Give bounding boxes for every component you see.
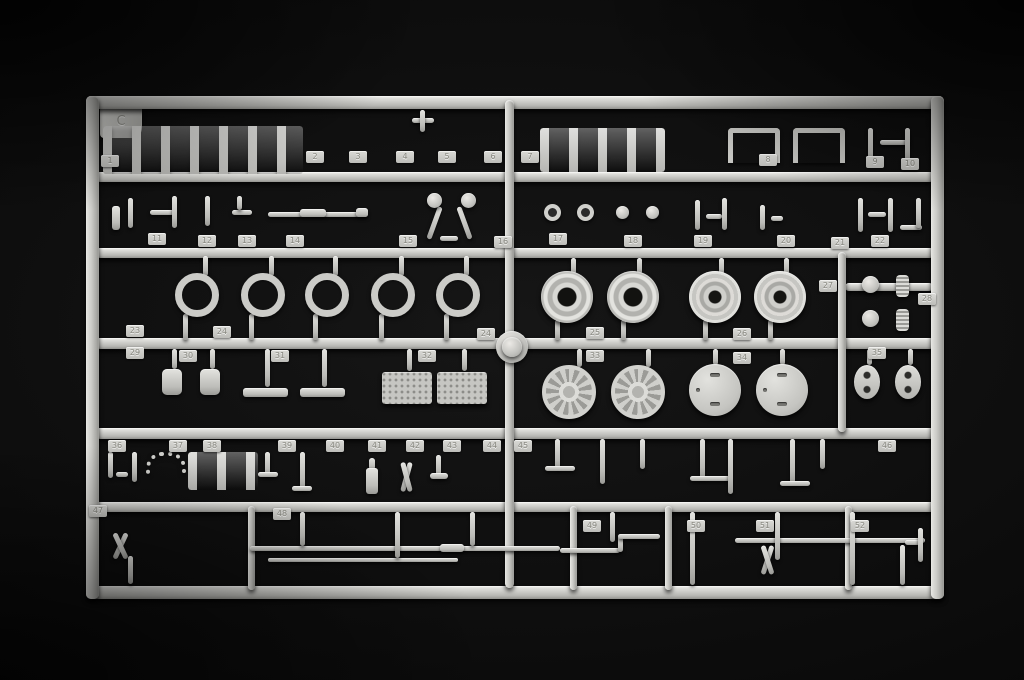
runner-part	[116, 472, 128, 477]
part-number-tab: 25	[586, 327, 604, 339]
runner-part	[300, 512, 305, 546]
runner-part	[258, 472, 278, 477]
part-number-tab: 13	[238, 235, 256, 247]
runner-part	[618, 534, 660, 539]
part-number-tab: 38	[203, 440, 221, 452]
sprue: C 12345678910111213141516171819202122232…	[0, 0, 1024, 680]
runner-part	[440, 236, 458, 241]
part-number-tab: 42	[406, 440, 424, 452]
runner-part	[768, 320, 773, 340]
runner-part	[205, 196, 210, 226]
runner-part	[333, 256, 338, 276]
part-number-tab: 24	[213, 326, 231, 338]
part-number-tab: 44	[483, 440, 501, 452]
ring-part	[241, 273, 285, 317]
part-number-tab: 51	[756, 520, 774, 532]
runner-part	[780, 481, 810, 486]
part-number-tab: 14	[286, 235, 304, 247]
runner-part	[771, 216, 783, 221]
toothed-arc-part	[146, 452, 186, 474]
runner-part	[444, 314, 449, 340]
flat-disc-part	[689, 364, 741, 416]
part-number-tab: 1	[101, 155, 119, 167]
part-number-tab: 15	[399, 235, 417, 247]
donut-disc-part	[577, 204, 594, 221]
runner-part	[407, 349, 412, 371]
runner-part	[735, 538, 925, 543]
runner-part	[366, 468, 378, 494]
round-part	[862, 276, 879, 293]
runner-part	[399, 256, 404, 276]
sprue-rail	[931, 96, 944, 599]
runner-part	[462, 349, 467, 371]
sprue-rail	[845, 283, 933, 291]
ring-part	[305, 273, 349, 317]
part-number-tab: 10	[901, 158, 919, 170]
runner-part	[703, 320, 708, 340]
part-number-tab: 30	[179, 350, 197, 362]
part-number-tab: 17	[549, 233, 567, 245]
runner-part	[713, 349, 718, 365]
part-number-tab: 21	[831, 237, 849, 249]
runner-part	[775, 512, 780, 560]
runner-part	[150, 210, 174, 215]
sprue-rail	[86, 96, 944, 109]
runner-part	[908, 349, 913, 365]
runner-part	[108, 452, 113, 478]
runner-part	[610, 512, 615, 542]
part-number-tab: 47	[89, 505, 107, 517]
hatch-oval-part	[854, 365, 880, 399]
part-number-tab: 11	[148, 233, 166, 245]
round-part	[427, 193, 442, 208]
runner-part	[426, 206, 442, 240]
runner-part	[183, 314, 188, 340]
part-number-tab: 52	[851, 520, 869, 532]
part-number-tab: 36	[108, 440, 126, 452]
box-part	[200, 369, 220, 395]
donut-disc-part	[544, 204, 561, 221]
tread-plate-part	[437, 372, 487, 404]
hub-wheel	[611, 365, 665, 419]
sprue-rail	[838, 252, 846, 432]
part-number-tab: 24	[477, 328, 495, 340]
part-number-tab: 12	[198, 235, 216, 247]
sprue-rail	[665, 506, 672, 590]
runner-part	[640, 439, 645, 469]
runner-part	[232, 210, 252, 215]
sprue-rail	[86, 586, 944, 599]
runner-part	[728, 439, 733, 494]
runner-part	[700, 439, 705, 479]
flat-bar-part	[243, 388, 288, 397]
runner-part	[265, 349, 270, 387]
part-number-tab: 41	[368, 440, 386, 452]
runner-part	[888, 198, 893, 232]
road-wheel-rim	[541, 271, 593, 323]
runner-part	[269, 256, 274, 276]
runner-part	[600, 439, 605, 484]
runner-part	[722, 198, 727, 230]
runner-part	[203, 256, 208, 276]
runner-part	[237, 196, 242, 210]
runner-part	[545, 466, 575, 471]
gear-cylinder-part	[896, 309, 909, 331]
part-number-tab: 16	[494, 236, 512, 248]
part-number-tab: 34	[733, 352, 751, 364]
runner-part	[900, 545, 905, 585]
runner-part	[300, 209, 326, 217]
runner-part	[646, 349, 651, 367]
round-part	[502, 337, 522, 357]
part-number-tab: 32	[418, 350, 436, 362]
runner-part	[112, 206, 120, 230]
runner-part	[395, 512, 400, 558]
part-number-tab: 48	[273, 508, 291, 520]
ring-part	[175, 273, 219, 317]
runner-part	[760, 205, 765, 230]
runner-part	[790, 439, 795, 484]
part-number-tab: 45	[514, 440, 532, 452]
small-pin-parts-row	[188, 452, 258, 490]
part-number-tab: 23	[126, 325, 144, 337]
runner-part	[820, 439, 825, 469]
hub-wheel	[542, 365, 596, 419]
part-number-tab: 26	[733, 328, 751, 340]
small-pin-parts-row	[540, 128, 665, 172]
runner-part	[555, 320, 560, 340]
part-number-tab: 33	[586, 350, 604, 362]
flat-disc-part	[756, 364, 808, 416]
round-part	[862, 310, 879, 327]
sprue-rail	[95, 428, 940, 439]
runner-part	[560, 548, 620, 553]
bracket-part	[793, 128, 845, 163]
round-part	[646, 206, 659, 219]
runner-part	[292, 486, 312, 491]
runner-part	[420, 110, 425, 132]
part-number-tab: 5	[438, 151, 456, 163]
part-number-tab: 19	[694, 235, 712, 247]
runner-part	[456, 206, 472, 240]
part-number-tab: 6	[484, 151, 502, 163]
part-number-tab: 3	[349, 151, 367, 163]
box-part	[162, 369, 182, 395]
part-number-tab: 49	[583, 520, 601, 532]
runner-part	[440, 544, 464, 552]
part-number-tab: 22	[871, 235, 889, 247]
sprue-rail	[95, 248, 935, 258]
runner-part	[268, 558, 458, 562]
sprue-rail	[86, 96, 99, 599]
sprue-photo: C 12345678910111213141516171819202122232…	[0, 0, 1024, 680]
runner-part	[430, 473, 448, 479]
runner-part	[690, 476, 730, 481]
part-number-tab: 28	[918, 293, 936, 305]
part-number-tab: 35	[868, 347, 886, 359]
gear-cylinder-part	[896, 275, 909, 297]
part-number-tab: 37	[169, 440, 187, 452]
road-wheel-rim	[754, 271, 806, 323]
runner-part	[868, 212, 886, 217]
part-number-tab: 50	[687, 520, 705, 532]
part-number-tab: 18	[624, 235, 642, 247]
part-number-tab: 9	[866, 156, 884, 168]
round-part	[461, 193, 476, 208]
sprue-rail	[95, 502, 940, 512]
runner-part	[172, 196, 177, 228]
hatch-oval-part	[895, 365, 921, 399]
runner-part	[128, 198, 133, 228]
runner-part	[780, 349, 785, 365]
part-number-tab: 40	[326, 440, 344, 452]
road-wheel-rim	[607, 271, 659, 323]
tread-plate-part	[382, 372, 432, 404]
small-pin-parts-row	[103, 126, 303, 174]
ring-part	[371, 273, 415, 317]
runner-part	[577, 349, 582, 367]
runner-part	[313, 314, 318, 340]
part-number-tab: 2	[306, 151, 324, 163]
part-number-tab: 7	[521, 151, 539, 163]
runner-part	[470, 512, 475, 546]
runner-part	[905, 128, 910, 162]
runner-part	[621, 320, 626, 340]
part-number-tab: 8	[759, 154, 777, 166]
runner-part	[464, 256, 469, 276]
runner-part	[132, 452, 137, 482]
road-wheel-rim	[689, 271, 741, 323]
runner-part	[172, 349, 177, 369]
runner-part	[918, 528, 923, 562]
runner-part	[250, 546, 560, 551]
runner-part	[695, 200, 700, 230]
runner-part	[916, 198, 921, 228]
ring-part	[436, 273, 480, 317]
flat-bar-part	[300, 388, 345, 397]
runner-part	[706, 214, 722, 219]
part-number-tab: 20	[777, 235, 795, 247]
part-number-tab: 39	[278, 440, 296, 452]
runner-part	[379, 314, 384, 340]
part-number-tab: 46	[878, 440, 896, 452]
runner-part	[210, 349, 215, 369]
runner-part	[300, 452, 305, 490]
runner-part	[858, 198, 863, 232]
runner-part	[128, 556, 133, 584]
part-number-tab: 31	[271, 350, 289, 362]
round-part	[616, 206, 629, 219]
runner-part	[249, 314, 254, 340]
part-number-tab: 29	[126, 347, 144, 359]
part-number-tab: 43	[443, 440, 461, 452]
part-number-tab: 4	[396, 151, 414, 163]
part-number-tab: 27	[819, 280, 837, 292]
runner-part	[555, 439, 560, 469]
runner-part	[322, 349, 327, 387]
runner-part	[356, 208, 368, 217]
